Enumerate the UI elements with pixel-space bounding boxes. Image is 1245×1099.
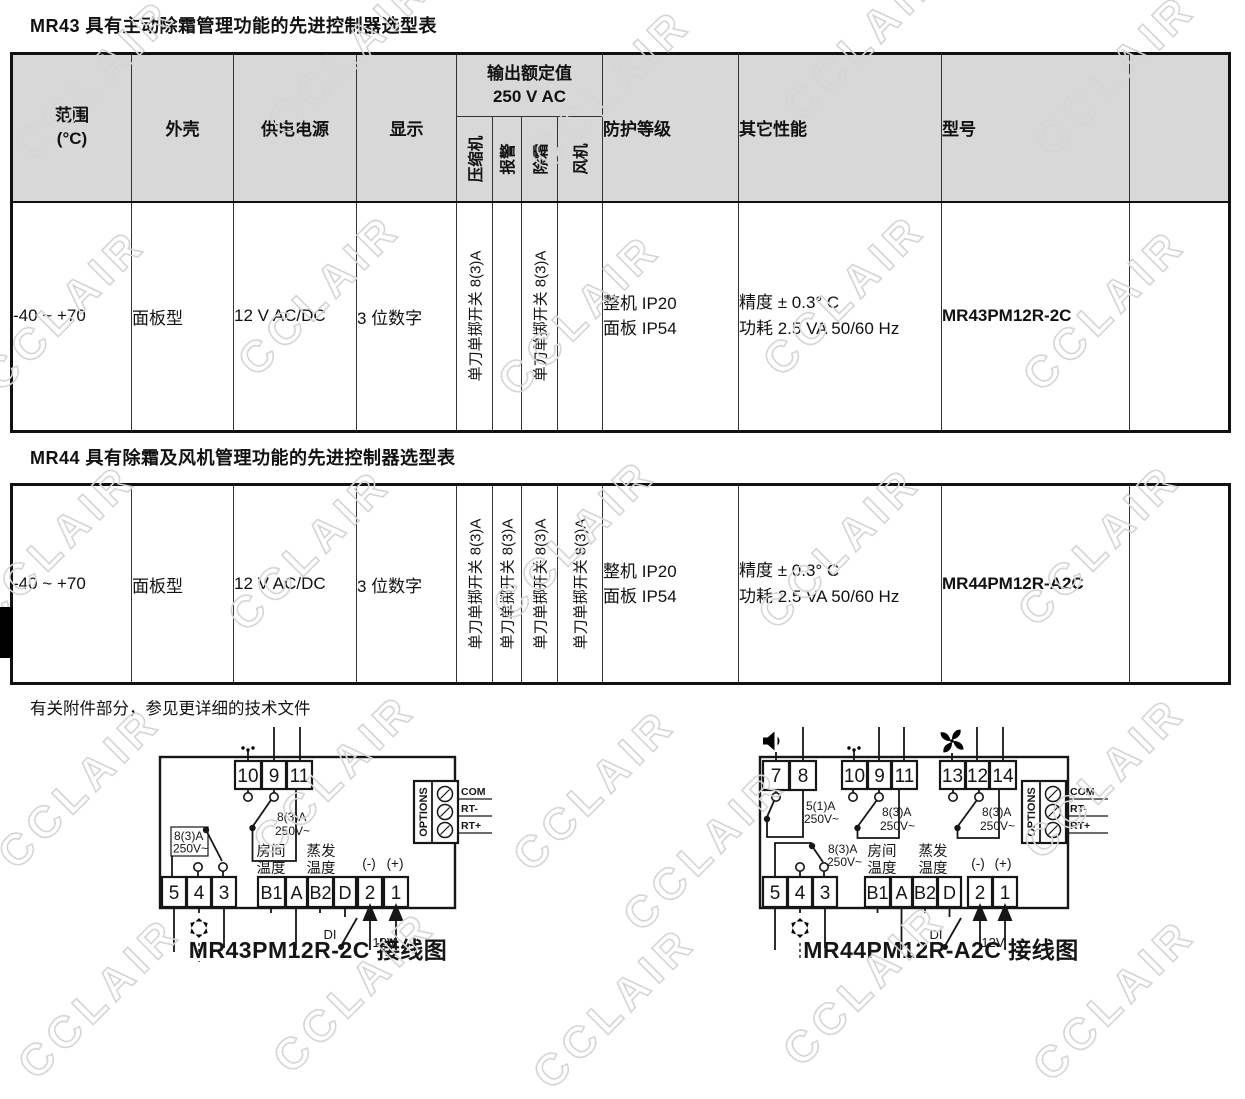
fan-icon <box>941 730 964 753</box>
minus-label: (-) <box>971 856 985 871</box>
terminal-9: 9 <box>874 766 885 787</box>
col-header-display: 显示 <box>357 54 457 202</box>
compressor-relay-rating: 8(3)A <box>828 842 857 856</box>
col-header-defrost: 除霜 <box>522 117 558 202</box>
terminal-3: 3 <box>219 883 230 904</box>
terminal-12: 12 <box>967 766 988 787</box>
fan-output-cell <box>558 202 603 432</box>
terminal-b1: B1 <box>866 883 888 903</box>
terminal-10: 10 <box>844 766 865 787</box>
snowflake-icon <box>789 917 812 939</box>
terminal-d: D <box>339 883 352 903</box>
room-temp-label: 房间 <box>257 843 286 860</box>
evap-temp-label: 蒸发 <box>307 843 336 860</box>
other-performance-cell: 精度 ± 0.3° C 功耗 2.5 VA 50/60 Hz <box>739 202 942 432</box>
mr44-wiring-diagram: 7 8 10 9 11 13 12 14 5(1)A 250V~ 8(3)A 2… <box>745 715 1125 980</box>
svg-text:250V~: 250V~ <box>880 819 915 833</box>
col-header-fan: 风机 <box>558 117 603 202</box>
plus-label: (+) <box>387 856 404 871</box>
col-header-alarm: 报警 <box>493 117 522 202</box>
terminal-1: 1 <box>1000 883 1011 904</box>
com-label: COM <box>1070 786 1095 798</box>
alarm-speaker-icon <box>763 732 780 751</box>
empty-cell <box>1130 485 1230 684</box>
terminal-8: 8 <box>798 766 809 787</box>
snowflake-icon <box>188 917 211 939</box>
terminal-7: 7 <box>771 766 782 787</box>
mr43-selection-table: 范围 (°C) 外壳 供电电源 显示 输出额定值 250 V AC 防护等级 其… <box>10 52 1231 433</box>
display-cell: 3 位数字 <box>357 485 457 684</box>
terminal-1: 1 <box>391 883 402 904</box>
fan-relay-rating: 8(3)A <box>982 805 1011 819</box>
col-header-power: 供电电源 <box>234 54 357 202</box>
mr43-table-title: MR43 具有主动除霜管理功能的先进控制器选型表 <box>30 12 437 38</box>
mr44-selection-table: -40 ~ +70 面板型 12 V AC/DC 3 位数字 单刀单掷开关 8(… <box>10 483 1231 685</box>
mr44-row: -40 ~ +70 面板型 12 V AC/DC 3 位数字 单刀单掷开关 8(… <box>12 485 1230 684</box>
terminal-4: 4 <box>795 883 806 904</box>
model-cell: MR44PM12R-A2C <box>942 485 1130 684</box>
svg-text:温度: 温度 <box>257 860 286 877</box>
terminal-10: 10 <box>237 766 258 787</box>
rt-minus-label: RT- <box>461 803 478 815</box>
page-edge-mark <box>0 607 13 658</box>
mr43-wiring-diagram: 10 9 11 8(3)A 250V~ 8(3)A 250V~ 5 4 3 <box>140 715 505 980</box>
evap-temp-label: 蒸发 <box>919 843 948 860</box>
terminal-4: 4 <box>194 883 205 904</box>
protection-cell: 整机 IP20 面板 IP54 <box>603 485 739 684</box>
fan-output-cell: 单刀单掷开关 8(3)A <box>558 485 603 684</box>
col-header-compressor: 压缩机 <box>457 117 493 202</box>
mr43-row: -40 ~ +70 面板型 12 V AC/DC 3 位数字 单刀单掷开关 8(… <box>12 202 1230 432</box>
compressor-output-cell: 单刀单掷开关 8(3)A <box>457 485 493 684</box>
terminal-b1: B1 <box>260 883 282 903</box>
svg-text:温度: 温度 <box>919 860 948 877</box>
other-performance-cell: 精度 ± 0.3° C 功耗 2.5 VA 50/60 Hz <box>739 485 942 684</box>
svg-text:250V~: 250V~ <box>980 819 1015 833</box>
minus-label: (-) <box>362 856 376 871</box>
datasheet-page: MR43 具有主动除霜管理功能的先进控制器选型表 MR44 具有除霜及风机管理功… <box>0 0 1245 1030</box>
mr44-table-title: MR44 具有除霜及风机管理功能的先进控制器选型表 <box>30 444 456 470</box>
col-header-protection: 防护等级 <box>603 54 739 202</box>
defrost-relay-rating: 8(3)A <box>277 810 306 824</box>
defrost-relay-rating: 8(3)A <box>882 805 911 819</box>
svg-text:250V~: 250V~ <box>275 824 310 838</box>
mr44-diagram-caption: MR44PM12R-A2C 接线图 <box>803 937 1079 963</box>
svg-text:温度: 温度 <box>307 860 336 877</box>
svg-text:250V~: 250V~ <box>804 812 839 826</box>
rt-plus-label: RT+ <box>461 820 481 832</box>
terminal-3: 3 <box>820 883 831 904</box>
range-cell: -40 ~ +70 <box>12 485 132 684</box>
defrost-output-cell: 单刀单掷开关 8(3)A <box>522 485 558 684</box>
display-cell: 3 位数字 <box>357 202 457 432</box>
col-header-housing: 外壳 <box>132 54 234 202</box>
terminal-d: D <box>943 883 956 903</box>
room-temp-label: 房间 <box>868 843 897 860</box>
defrost-icon <box>241 726 254 752</box>
options-label: OPTIONS <box>1026 787 1038 837</box>
terminal-a: A <box>290 883 302 903</box>
com-label: COM <box>461 786 486 798</box>
col-header-model: 型号 <box>942 54 1130 202</box>
col-header-empty <box>1130 54 1230 202</box>
svg-text:250V~: 250V~ <box>827 855 862 869</box>
watermark-text: CCLAIR <box>524 917 707 1099</box>
defrost-output-cell: 单刀单掷开关 8(3)A <box>522 202 558 432</box>
terminal-5: 5 <box>169 883 180 904</box>
terminal-2: 2 <box>365 883 376 904</box>
terminal-11: 11 <box>290 766 310 787</box>
rt-plus-label: RT+ <box>1070 820 1090 832</box>
terminal-b2: B2 <box>309 883 331 903</box>
terminal-5: 5 <box>770 883 781 904</box>
alarm-relay-rating: 5(1)A <box>806 799 835 813</box>
terminal-9: 9 <box>269 766 280 787</box>
terminal-b2: B2 <box>914 883 936 903</box>
rt-minus-label: RT- <box>1070 803 1087 815</box>
terminal-14: 14 <box>992 766 1014 787</box>
range-cell: -40 ~ +70 <box>12 202 132 432</box>
svg-text:温度: 温度 <box>868 860 897 877</box>
power-cell: 12 V AC/DC <box>234 485 357 684</box>
col-header-other: 其它性能 <box>739 54 942 202</box>
terminal-a: A <box>895 883 907 903</box>
alarm-output-cell <box>493 202 522 432</box>
empty-cell <box>1130 202 1230 432</box>
model-cell: MR43PM12R-2C <box>942 202 1130 432</box>
compressor-output-cell: 单刀单掷开关 8(3)A <box>457 202 493 432</box>
mr43-diagram-caption: MR43PM12R-2C 接线图 <box>189 937 448 963</box>
terminal-11: 11 <box>895 766 915 787</box>
power-cell: 12 V AC/DC <box>234 202 357 432</box>
col-header-output-rating: 输出额定值 250 V AC <box>457 54 603 117</box>
housing-cell: 面板型 <box>132 202 234 432</box>
terminal-2: 2 <box>975 883 986 904</box>
alarm-output-cell: 单刀单掷开关 8(3)A <box>493 485 522 684</box>
svg-text:250V~: 250V~ <box>173 842 208 856</box>
protection-cell: 整机 IP20 面板 IP54 <box>603 202 739 432</box>
housing-cell: 面板型 <box>132 485 234 684</box>
col-header-range: 范围 (°C) <box>12 54 132 202</box>
watermark-text: CCLAIR <box>504 699 687 882</box>
defrost-icon <box>847 726 860 752</box>
plus-label: (+) <box>995 856 1012 871</box>
options-label: OPTIONS <box>418 787 430 837</box>
terminal-13: 13 <box>942 766 963 787</box>
